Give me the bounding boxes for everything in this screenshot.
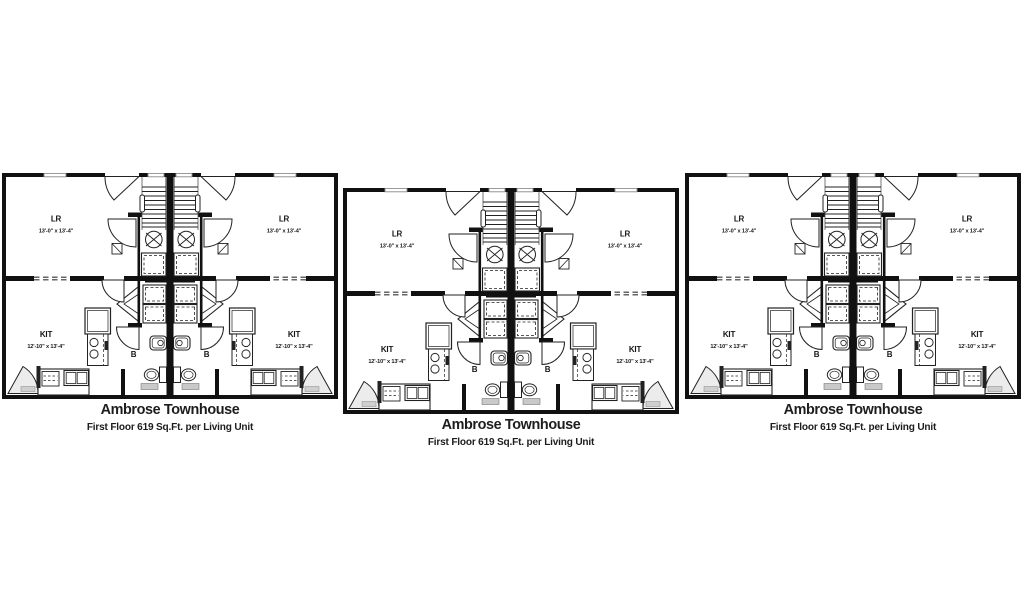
floorplan-3: Ambrose Townhouse First Floor 619 Sq.Ft.… (685, 173, 1021, 399)
floorplan-1-drawing (2, 173, 338, 399)
floorplan-3-title: Ambrose Townhouse (692, 401, 1015, 418)
floorplan-1: Ambrose Townhouse First Floor 619 Sq.Ft.… (2, 173, 338, 399)
floorplan-2-subtitle: First Floor 619 Sq.Ft. per Living Unit (350, 436, 673, 448)
floorplan-2: Ambrose Townhouse First Floor 619 Sq.Ft.… (343, 188, 679, 414)
floorplan-3-subtitle: First Floor 619 Sq.Ft. per Living Unit (692, 421, 1015, 433)
floorplan-3-drawing (685, 173, 1021, 399)
floorplan-1-title: Ambrose Townhouse (9, 401, 332, 418)
floorplan-2-drawing (343, 188, 679, 414)
floorplan-1-subtitle: First Floor 619 Sq.Ft. per Living Unit (9, 421, 332, 433)
floorplan-2-title: Ambrose Townhouse (350, 416, 673, 433)
floorplan-sheet: Ambrose Townhouse First Floor 619 Sq.Ft.… (0, 0, 1024, 605)
